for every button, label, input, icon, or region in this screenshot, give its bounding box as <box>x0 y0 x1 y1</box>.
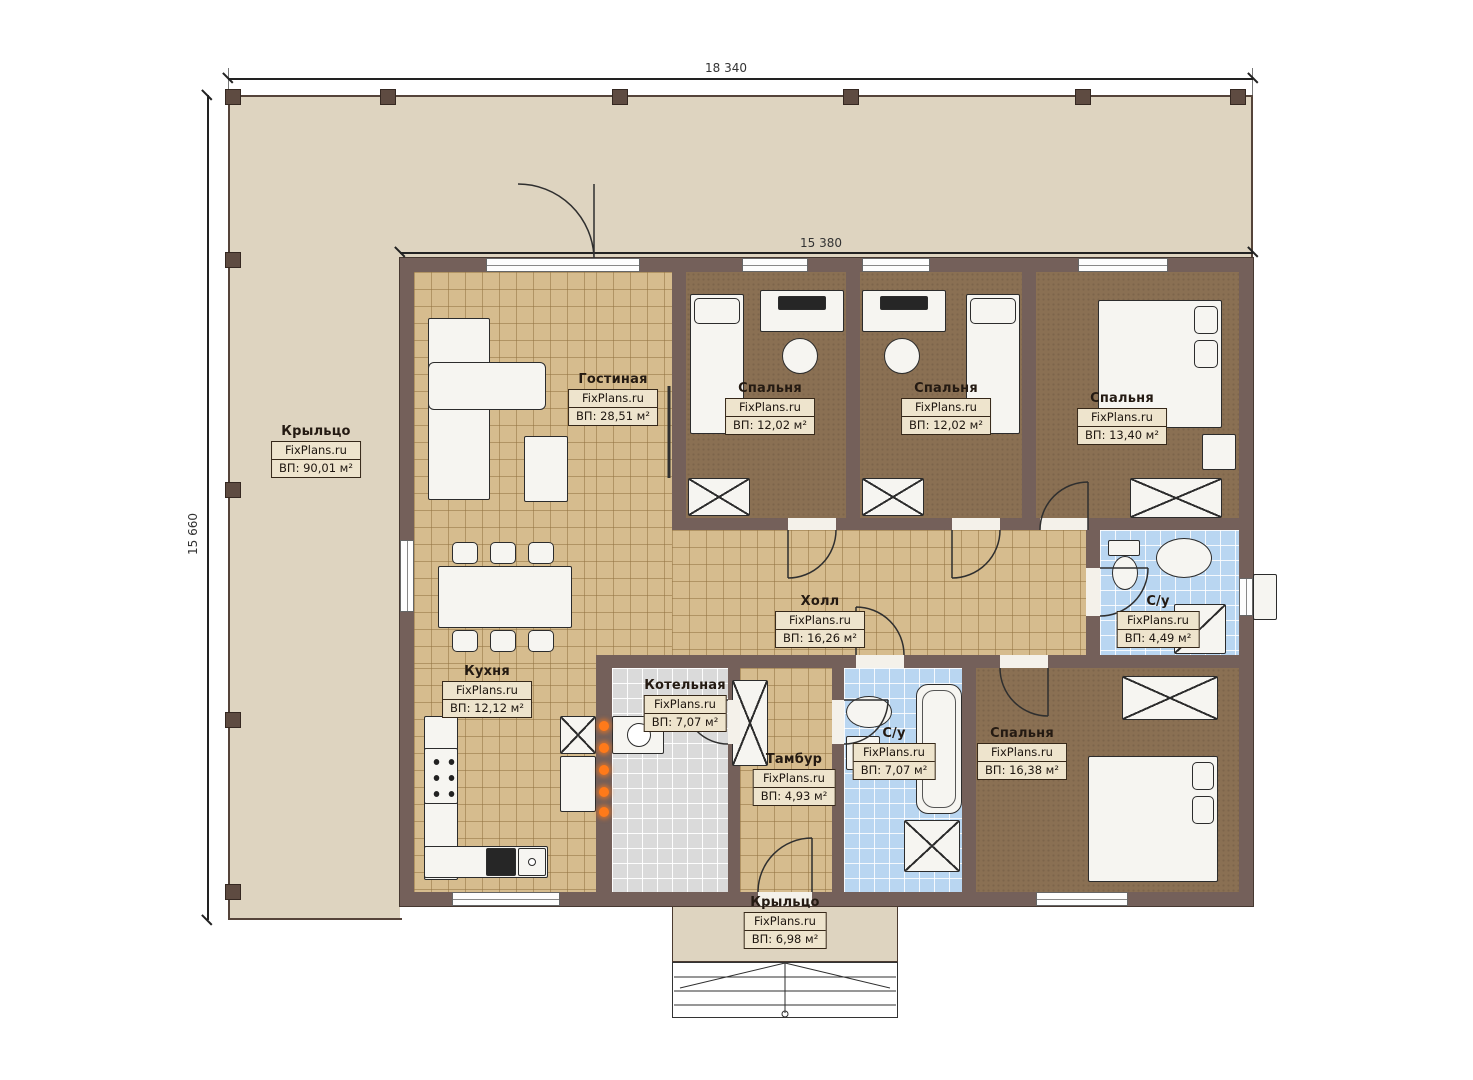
porch-edge-bottom <box>228 918 402 920</box>
brand-watermark: FixPlans.ru <box>754 770 835 787</box>
room-area: ВП: 4,93 м² <box>754 787 835 805</box>
wardrobe-x <box>862 478 924 516</box>
dining-chair <box>452 630 478 652</box>
wardrobe-x <box>1130 478 1222 518</box>
radiator-icon <box>599 743 609 753</box>
window-wc-top <box>1239 578 1253 616</box>
dimension-width-total: 18 340 <box>705 61 747 75</box>
dining-chair <box>528 542 554 564</box>
porch-post <box>225 252 241 268</box>
pillow <box>1192 796 1214 824</box>
dimension-line-top <box>228 78 1253 80</box>
dimension-height-total: 15 660 <box>186 513 200 555</box>
door-gap-tambour <box>856 655 904 668</box>
room-label-porch-left: Крыльцо FixPlans.ru ВП: 90,01 м² <box>271 424 361 478</box>
window-bedroom3 <box>1078 258 1168 272</box>
door-gap-bedroom3 <box>1040 518 1088 530</box>
office-chair-icon <box>782 338 818 374</box>
porch-post <box>225 482 241 498</box>
door-gap-wc-bottom <box>832 700 844 744</box>
pillow <box>970 298 1016 324</box>
pillow <box>1194 340 1218 368</box>
room-area: ВП: 16,26 м² <box>776 629 864 647</box>
pillow <box>1194 306 1218 334</box>
room-area: ВП: 6,98 м² <box>745 930 826 948</box>
brand-watermark: FixPlans.ru <box>745 913 826 930</box>
brand-watermark: FixPlans.ru <box>902 399 990 416</box>
pillow <box>694 298 740 324</box>
wardrobe-x <box>1122 676 1218 720</box>
room-name: Спальня <box>977 726 1067 741</box>
radiator-icon <box>599 787 609 797</box>
door-gap-bedroom2 <box>952 518 1000 530</box>
dimension-guide <box>1252 68 1253 95</box>
radiator-icon <box>599 721 609 731</box>
porch-post <box>380 89 396 105</box>
room-info-box: FixPlans.ru ВП: 13,40 м² <box>1077 408 1167 445</box>
brand-watermark: FixPlans.ru <box>1078 409 1166 426</box>
dining-chair <box>528 630 554 652</box>
brand-watermark: FixPlans.ru <box>726 399 814 416</box>
kitchen-cabinet-x <box>560 716 596 754</box>
dining-chair <box>452 542 478 564</box>
door-gap-wc-top <box>1086 568 1100 616</box>
room-area: ВП: 4,49 м² <box>1118 629 1199 647</box>
room-name: Крыльцо <box>744 895 827 910</box>
room-name: Спальня <box>901 381 991 396</box>
porch-post <box>225 89 241 105</box>
room-name: Кухня <box>442 664 532 679</box>
office-chair-icon <box>884 338 920 374</box>
porch-edge-left <box>228 95 230 920</box>
room-info-box: FixPlans.ru ВП: 7,07 м² <box>853 743 936 780</box>
room-name: Холл <box>775 594 865 609</box>
room-name: Тамбур <box>753 752 836 767</box>
room-label-bedroom2: Спальня FixPlans.ru ВП: 12,02 м² <box>901 381 991 435</box>
room-label-bedroom4: Спальня FixPlans.ru ВП: 16,38 м² <box>977 726 1067 780</box>
room-area: ВП: 13,40 м² <box>1078 426 1166 444</box>
room-label-wc-top: С/у FixPlans.ru ВП: 4,49 м² <box>1117 594 1200 648</box>
window-entry-living <box>486 258 640 272</box>
room-name: Гостиная <box>568 372 658 387</box>
room-name: Крыльцо <box>271 424 361 439</box>
porch-post <box>225 712 241 728</box>
room-area: ВП: 28,51 м² <box>569 407 657 425</box>
radiator-icon <box>599 807 609 817</box>
monitor-icon <box>778 296 826 310</box>
door-gap-bedroom4 <box>1000 655 1048 668</box>
dining-chair <box>490 630 516 652</box>
room-info-box: FixPlans.ru ВП: 90,01 м² <box>271 441 361 478</box>
porch-terrace-left <box>228 95 400 920</box>
room-info-box: FixPlans.ru ВП: 16,26 м² <box>775 611 865 648</box>
brand-watermark: FixPlans.ru <box>443 682 531 699</box>
floor-living-right <box>596 272 672 655</box>
kitchen-sink-bowl <box>518 848 546 876</box>
coffee-table <box>524 436 568 502</box>
radiator-icon <box>599 765 609 775</box>
sink-icon <box>846 696 892 728</box>
door-gap-boiler <box>728 700 740 744</box>
room-label-boiler: Котельная FixPlans.ru ВП: 7,07 м² <box>644 678 727 732</box>
room-name: Котельная <box>644 678 727 693</box>
floor-plan: 18 340 15 380 15 660 <box>0 0 1473 1080</box>
door-gap-bedroom1 <box>788 518 836 530</box>
porch-post <box>1075 89 1091 105</box>
room-info-box: FixPlans.ru ВП: 4,93 м² <box>753 769 836 806</box>
porch-post <box>1230 89 1246 105</box>
room-label-bedroom1: Спальня FixPlans.ru ВП: 12,02 м² <box>725 381 815 435</box>
pillow <box>1192 762 1214 790</box>
toilet-icon <box>1112 556 1138 590</box>
room-info-box: FixPlans.ru ВП: 4,49 м² <box>1117 611 1200 648</box>
brand-watermark: FixPlans.ru <box>978 744 1066 761</box>
ac-unit-outside <box>1253 574 1277 620</box>
wardrobe-x <box>688 478 750 516</box>
toilet-tank <box>1108 540 1140 556</box>
room-area: ВП: 12,12 м² <box>443 699 531 717</box>
room-area: ВП: 12,02 м² <box>902 416 990 434</box>
kitchen-cabinet <box>560 756 596 812</box>
room-info-box: FixPlans.ru ВП: 12,02 м² <box>901 398 991 435</box>
room-info-box: FixPlans.ru ВП: 6,98 м² <box>744 912 827 949</box>
room-info-box: FixPlans.ru ВП: 7,07 м² <box>644 695 727 732</box>
window-dining <box>400 540 414 612</box>
room-info-box: FixPlans.ru ВП: 12,12 м² <box>442 681 532 718</box>
room-name: Спальня <box>725 381 815 396</box>
room-name: С/у <box>853 726 936 741</box>
dining-chair <box>490 542 516 564</box>
room-label-bedroom3: Спальня FixPlans.ru ВП: 13,40 м² <box>1077 391 1167 445</box>
sofa-arm <box>428 362 546 410</box>
brand-watermark: FixPlans.ru <box>854 744 935 761</box>
room-label-wc-bottom: С/у FixPlans.ru ВП: 7,07 м² <box>853 726 936 780</box>
stove-icon <box>424 748 458 804</box>
nightstand <box>1202 434 1236 470</box>
porch-edge-right <box>1251 95 1253 258</box>
kitchen-sink <box>486 848 516 876</box>
room-info-box: FixPlans.ru ВП: 16,38 м² <box>977 743 1067 780</box>
room-info-box: FixPlans.ru ВП: 12,02 м² <box>725 398 815 435</box>
dining-table <box>438 566 572 628</box>
room-name: С/у <box>1117 594 1200 609</box>
room-label-living: Гостиная FixPlans.ru ВП: 28,51 м² <box>568 372 658 426</box>
window-bedroom2 <box>862 258 930 272</box>
window-bedroom4 <box>1036 892 1128 906</box>
monitor-icon <box>880 296 928 310</box>
shower-icon <box>904 820 960 872</box>
entry-steps <box>672 962 898 1018</box>
room-label-hall: Холл FixPlans.ru ВП: 16,26 м² <box>775 594 865 648</box>
porch-post <box>843 89 859 105</box>
room-area: ВП: 7,07 м² <box>854 761 935 779</box>
window-bedroom1 <box>742 258 808 272</box>
window-kitchen <box>452 892 560 906</box>
dimension-line-house <box>400 252 1253 254</box>
room-info-box: FixPlans.ru ВП: 28,51 м² <box>568 389 658 426</box>
room-area: ВП: 16,38 м² <box>978 761 1066 779</box>
room-label-porch-bottom: Крыльцо FixPlans.ru ВП: 6,98 м² <box>744 895 827 949</box>
room-area: ВП: 12,02 м² <box>726 416 814 434</box>
room-label-tambour: Тамбур FixPlans.ru ВП: 4,93 м² <box>753 752 836 806</box>
brand-watermark: FixPlans.ru <box>272 442 360 459</box>
brand-watermark: FixPlans.ru <box>645 696 726 713</box>
room-label-kitchen: Кухня FixPlans.ru ВП: 12,12 м² <box>442 664 532 718</box>
room-name: Спальня <box>1077 391 1167 406</box>
floor-hall <box>672 530 1086 655</box>
porch-post <box>612 89 628 105</box>
sink-icon <box>1156 538 1212 578</box>
brand-watermark: FixPlans.ru <box>776 612 864 629</box>
dimension-width-house: 15 380 <box>800 236 842 250</box>
room-area: ВП: 7,07 м² <box>645 713 726 731</box>
porch-post <box>225 884 241 900</box>
brand-watermark: FixPlans.ru <box>1118 612 1199 629</box>
brand-watermark: FixPlans.ru <box>569 390 657 407</box>
room-area: ВП: 90,01 м² <box>272 459 360 477</box>
dimension-line-left <box>207 95 209 920</box>
